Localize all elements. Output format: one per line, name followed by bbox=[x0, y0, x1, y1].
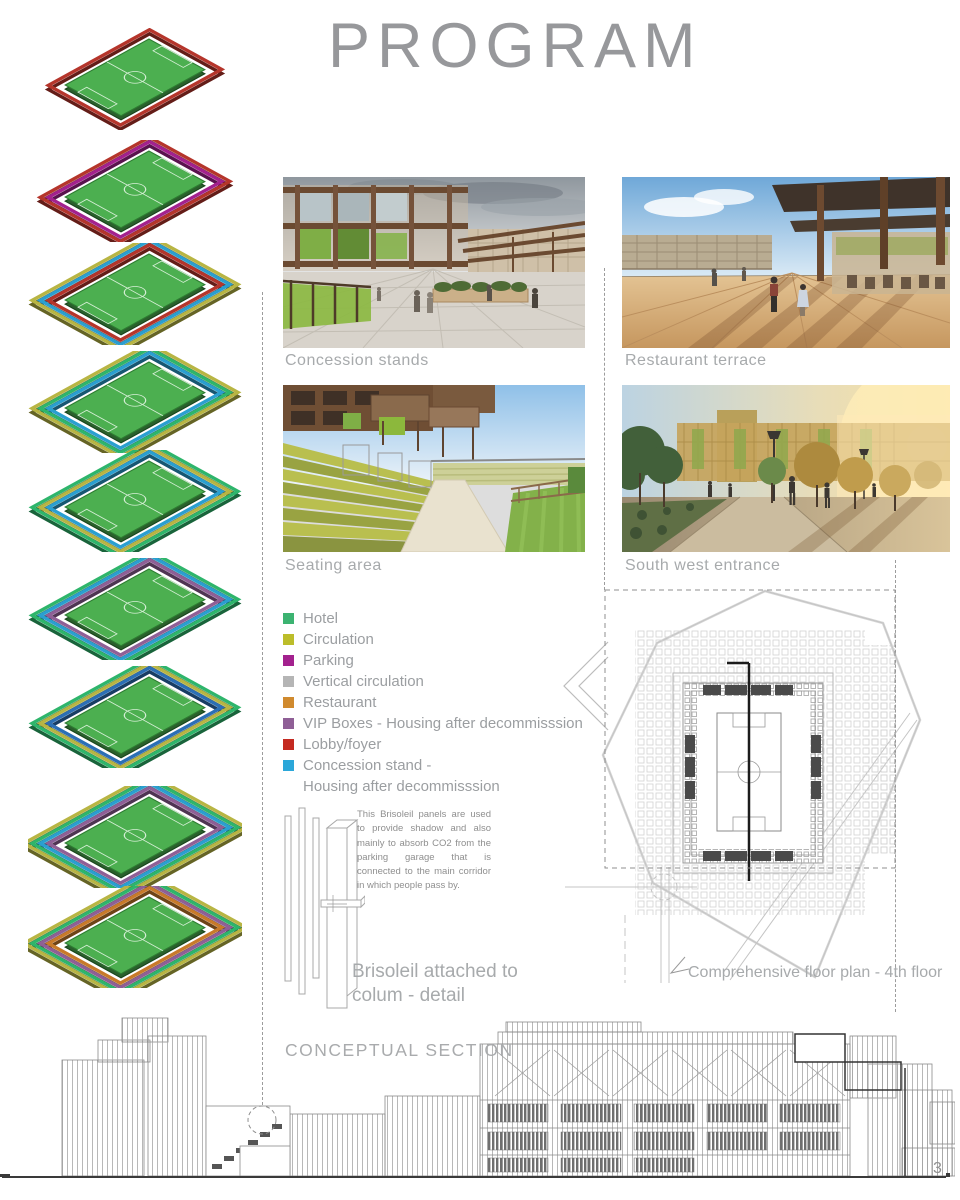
render-south-west-entrance-art bbox=[622, 385, 950, 552]
legend-swatch-parking bbox=[283, 655, 294, 666]
brisoleil-caption: Brisoleil attached to colum - detail bbox=[352, 960, 527, 1008]
legend-swatch-vip-boxes bbox=[283, 718, 294, 729]
axon-diagram-level-8 bbox=[28, 786, 242, 888]
axon-diagram-level-4 bbox=[28, 351, 242, 453]
render-restaurant-terrace-art bbox=[622, 177, 950, 348]
brisoleil-description: This Brisoleil panels are used to provid… bbox=[357, 808, 491, 894]
legend-swatch-concession-stand bbox=[283, 760, 294, 771]
render-seating-area bbox=[283, 385, 585, 552]
presentation-board: PROGRAM bbox=[0, 0, 960, 1200]
render-restaurant-terrace bbox=[622, 177, 950, 348]
page-title: PROGRAM bbox=[328, 10, 703, 82]
axon-diagram-level-1 bbox=[28, 28, 242, 130]
page-number: 3 bbox=[933, 1160, 942, 1178]
axon-diagram-level-3 bbox=[28, 243, 242, 345]
conceptual-section-drawing bbox=[0, 1008, 955, 1193]
legend-swatch-circulation bbox=[283, 634, 294, 645]
caption-restaurant-terrace: Restaurant terrace bbox=[625, 352, 767, 370]
legend-item-hotel: Hotel bbox=[283, 608, 613, 629]
section-label: CONCEPTUAL SECTION bbox=[285, 1040, 514, 1061]
render-south-west-entrance bbox=[622, 385, 950, 552]
dashed-guide-center bbox=[604, 268, 605, 590]
render-seating-area-art bbox=[283, 385, 585, 552]
legend-swatch-lobby-foyer bbox=[283, 739, 294, 750]
caption-seating-area: Seating area bbox=[285, 557, 382, 575]
dashed-guide-left bbox=[262, 292, 263, 1110]
render-concession-stands bbox=[283, 177, 585, 348]
floor-plan-caption: Comprehensive floor plan - 4th floor bbox=[688, 964, 942, 982]
render-concession-stands-art bbox=[283, 177, 585, 348]
axon-diagram-level-6 bbox=[28, 558, 242, 660]
caption-south-west-entrance: South west entrance bbox=[625, 557, 780, 575]
legend-item-lobby-foyer: Lobby/foyer bbox=[283, 734, 613, 755]
legend-swatch-vertical-circulation bbox=[283, 676, 294, 687]
axon-diagram-level-5 bbox=[28, 450, 242, 552]
axon-diagram-level-7 bbox=[28, 666, 242, 768]
legend-swatch-hotel bbox=[283, 613, 294, 624]
caption-concession-stands: Concession stands bbox=[285, 352, 429, 370]
legend-swatch-restaurant bbox=[283, 697, 294, 708]
axon-diagram-level-2 bbox=[28, 140, 242, 242]
axon-diagram-level-9 bbox=[28, 886, 242, 988]
floor-plan-drawing bbox=[565, 585, 960, 985]
legend-item-concession-stand: Concession stand - bbox=[283, 755, 613, 776]
